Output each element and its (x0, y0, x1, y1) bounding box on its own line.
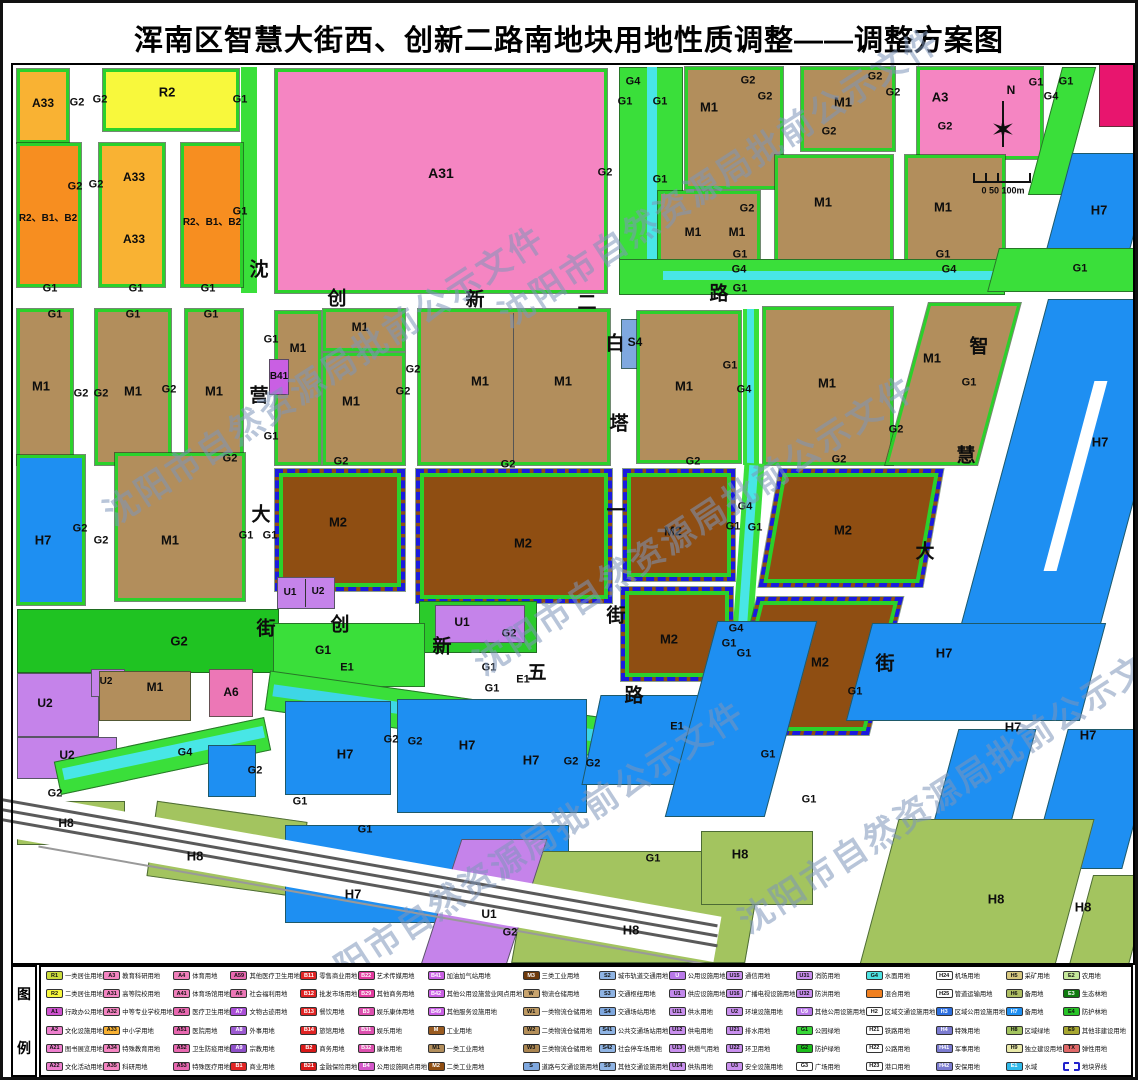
zone-label: G1 (263, 531, 278, 542)
zone-label: G1 (618, 97, 633, 108)
zone-label: G2 (408, 737, 423, 748)
legend-item: A32中等专业学校用地 (103, 1007, 172, 1016)
legend-item: U14供热用地 (669, 1062, 726, 1071)
legend-item: E3生态林地 (1063, 989, 1126, 998)
legend-column: E2农用地E3生态林地E4防护林地E9其他非建设用地TX弹性用地地块界线 (1063, 971, 1126, 1071)
zone-label: H8 (1075, 901, 1092, 914)
legend-item: H3区域公用设施用地 (936, 1007, 1005, 1016)
legend-item-label: 道路与交通设施用地 (542, 1062, 599, 1071)
legend-color-chip: B41 (428, 971, 445, 980)
legend-item: G2防护绿地 (796, 1044, 865, 1053)
legend-item: U16广播电视设施用地 (726, 989, 795, 998)
zone-label: G1 (733, 284, 748, 295)
legend-item: U9其他公用设施用地 (796, 1007, 865, 1016)
zone-label: 塔 (609, 415, 628, 434)
map-zone (1069, 875, 1138, 965)
legend-item: B42其他公用设施营业网点用地 (428, 989, 523, 998)
legend-item-label: 备用地 (1025, 989, 1044, 998)
legend-item: H5采矿用地 (1006, 971, 1063, 980)
legend-color-chip: H23 (866, 1062, 883, 1071)
legend-item: S42社会停车场用地 (599, 1044, 668, 1053)
legend-item: A6社会福利用地 (230, 989, 299, 998)
legend-item-label: 环境设施用地 (745, 1007, 783, 1016)
zone-label: G1 (1029, 78, 1044, 89)
legend-color-chip: H3 (936, 1007, 953, 1016)
zone-label: 二 (577, 294, 596, 313)
legend-item: A41体育场馆用地 (173, 989, 230, 998)
legend-color-chip: G4 (866, 971, 883, 980)
legend-item-label: 水面用地 (885, 971, 910, 980)
zone-label: H7 (337, 748, 354, 761)
legend-item-label: 其他非建设用地 (1082, 1026, 1126, 1035)
zone-label: G1 (126, 310, 141, 321)
zone-label: R2、B1、B2 (19, 214, 77, 224)
legend-item: M3三类工业用地 (523, 971, 599, 980)
legend-item: H22公路用地 (866, 1044, 935, 1053)
legend-item: S41公共交通场站用地 (599, 1026, 668, 1035)
legend-item: B14旅馆用地 (300, 1026, 357, 1035)
legend-item-label: 公用设施网点用地 (377, 1062, 427, 1071)
map-zone (103, 69, 239, 131)
zone-label: G1 (485, 684, 500, 695)
zone-label: G1 (358, 825, 373, 836)
zone-label: G1 (653, 97, 668, 108)
legend-item: E9其他非建设用地 (1063, 1026, 1126, 1035)
legend-column: M3三类工业用地W物流仓储用地W1一类物流仓储用地W2二类物流仓储用地W3三类物… (523, 971, 599, 1071)
legend-item: U2环境设施用地 (726, 1007, 795, 1016)
zone-label: G2 (334, 457, 349, 468)
zone-label: G2 (741, 76, 756, 87)
legend-item: B21金融保险用地 (300, 1062, 357, 1071)
zone-label: H7 (459, 739, 476, 752)
zone-label: 街 (875, 655, 894, 674)
legend-color-chip: B21 (300, 1062, 317, 1071)
zone-label: A33 (123, 171, 145, 183)
zone-label: G2 (501, 460, 516, 471)
legend-color-chip: A51 (173, 1026, 190, 1035)
zone-label: 街 (256, 620, 275, 639)
legend-color-chip: A3 (103, 971, 120, 980)
legend-item: A59其他医疗卫生用地 (230, 971, 299, 980)
zone-label: G1 (204, 310, 219, 321)
zone-label: H7 (1092, 436, 1109, 449)
zone-label: G1 (201, 284, 216, 295)
zone-label: H8 (623, 924, 640, 937)
legend-color-chip: G3 (796, 1062, 813, 1071)
legend-item-label: 二类居住用地 (65, 989, 103, 998)
legend-item: R2二类居住用地 (46, 989, 103, 998)
zone-label: G1 (936, 250, 951, 261)
zone-label: G2 (74, 389, 89, 400)
legend-column: H5采矿用地H6备用地H7备用地H8区域绿地H9独立建设用地E1水域 (1006, 971, 1063, 1071)
legend-item-label: 体育场馆用地 (192, 989, 230, 998)
map-zone (997, 173, 999, 183)
zone-label: M1 (161, 534, 179, 547)
zone-label: G2 (758, 92, 773, 103)
zone-label: M2 (811, 656, 829, 669)
legend-item-label: 三类物流仓储用地 (542, 1044, 592, 1053)
zone-label: M1 (685, 226, 702, 238)
legend-item: M1一类工业用地 (428, 1044, 523, 1053)
legend-item: H21铁路用地 (866, 1026, 935, 1035)
legend-color-chip: U2 (726, 1007, 743, 1016)
legend-item: A52卫生防疫用地 (173, 1044, 230, 1053)
legend-item-label: 商业用地 (249, 1062, 274, 1071)
legend-color-chip: A32 (103, 1007, 120, 1016)
legend-color-chip: U9 (796, 1007, 813, 1016)
zone-label: 白 (605, 335, 624, 354)
legend-color-chip: M2 (428, 1062, 445, 1071)
zone-label: M1 (32, 380, 50, 393)
legend-color-chip: S2 (599, 971, 616, 980)
zone-label: H8 (988, 893, 1005, 906)
legend-item-label: 宗教用地 (249, 1044, 274, 1053)
legend-item: H9独立建设用地 (1006, 1044, 1063, 1053)
zone-label: G1 (233, 207, 248, 218)
legend-item-label: 一类工业用地 (447, 1044, 485, 1053)
legend-color-chip: A4 (173, 971, 190, 980)
legend-column: A59其他医疗卫生用地A6社会福利用地A7文物古迹用地A8外事用地A9宗教用地B… (230, 971, 299, 1071)
legend-color-chip: H41 (936, 1044, 953, 1053)
legend-title-char: 图 (17, 984, 31, 1004)
zone-label: M1 (205, 385, 223, 398)
legend-item-label: 防洪用地 (815, 989, 840, 998)
zone-label: G2 (68, 182, 83, 193)
legend-color-chip: B42 (428, 989, 445, 998)
legend-item: H6备用地 (1006, 989, 1063, 998)
zone-label: M1 (124, 385, 142, 398)
legend-item-label: 其他公用设施营业网点用地 (447, 989, 523, 998)
zone-label: E1 (516, 675, 529, 686)
legend-color-chip: A59 (230, 971, 247, 980)
legend-item: A3教育科研用地 (103, 971, 172, 980)
legend-color-chip: E9 (1063, 1026, 1080, 1035)
legend-color-chip: H21 (866, 1026, 883, 1035)
legend-color-chip: B4 (358, 1062, 375, 1071)
zone-label: M1 (923, 352, 941, 365)
map-canvas: A33G2G2R2G1A31G2G4G1G1G1M1G2G2M1G2G2G2A3… (3, 3, 1138, 1080)
zone-label: 五 (527, 664, 546, 683)
legend-item: E1水域 (1006, 1062, 1063, 1071)
legend-color-chip: H9 (1006, 1044, 1023, 1053)
zone-label: G1 (748, 523, 763, 534)
legend-color-chip: B13 (300, 1007, 317, 1016)
zone-label: A3 (932, 91, 949, 104)
legend-item: H24机场用地 (936, 971, 1005, 980)
plan-map-page: A33G2G2R2G1A31G2G4G1G1G1M1G2G2M1G2G2G2A3… (0, 0, 1138, 1080)
legend-item-label: 军事用地 (955, 1044, 980, 1053)
legend-item: B4公用设施网点用地 (358, 1062, 427, 1071)
legend-color-chip: A31 (103, 989, 120, 998)
legend-color-chip: B49 (428, 1007, 445, 1016)
legend-color-chip: S9 (599, 1062, 616, 1071)
legend-color-chip: S4 (599, 1007, 616, 1016)
legend-column: B11零售商业用地B12批发市场用地B13餐饮用地B14旅馆用地B2商务用地B2… (300, 971, 357, 1071)
zone-label: A33 (123, 233, 145, 245)
legend-item: U13供燃气用地 (669, 1044, 726, 1053)
legend-column: U31消防用地U32防洪用地U9其他公用设施用地G1公园绿地G2防护绿地G3广场… (796, 971, 865, 1071)
legend-item: U31消防用地 (796, 971, 865, 980)
legend-item-label: 交通枢纽用地 (618, 989, 656, 998)
map-zone (917, 67, 1043, 159)
legend-color-chip: S (523, 1062, 540, 1071)
legend-item-label: 金融保险用地 (319, 1062, 357, 1071)
map-zone (905, 155, 1005, 269)
zone-label: G4 (942, 265, 957, 276)
legend-item-label: 中等专业学校用地 (122, 1007, 172, 1016)
map-zone (99, 671, 191, 721)
legend-item: H2区域交通设施用地 (866, 1007, 935, 1016)
legend-item: S2城市轨道交通用地 (599, 971, 668, 980)
legend-column: H24机场用地H25管道运输用地H3区域公用设施用地H4特殊用地H41军事用地H… (936, 971, 1005, 1071)
zone-label: S4 (628, 336, 643, 348)
legend-item-label: 批发市场用地 (319, 989, 357, 998)
zone-label: M1 (814, 196, 832, 209)
zone-label: G2 (503, 928, 518, 939)
zone-label: A6 (223, 686, 238, 698)
legend-item: A33中小学用地 (103, 1026, 172, 1035)
zone-label: M1 (290, 342, 307, 354)
zone-label: G1 (848, 687, 863, 698)
legend-color-chip: A7 (230, 1007, 247, 1016)
legend-color-chip: W1 (523, 1007, 540, 1016)
legend-color-chip: A52 (173, 1044, 190, 1053)
zone-label: M2 (514, 537, 532, 550)
legend-column: B22艺术传媒用地B29其他商务用地B3娱乐康体用地B31娱乐用地B32康体用地… (358, 971, 427, 1071)
zone-label: G4 (732, 265, 747, 276)
legend-color-chip: S42 (599, 1044, 616, 1053)
zone-label: G2 (586, 759, 601, 770)
zone-label: 新 (432, 638, 451, 657)
zone-label: G1 (802, 795, 817, 806)
legend-item-label: 水域 (1025, 1062, 1038, 1071)
zone-label: 创 (327, 290, 346, 309)
map-zone (1099, 63, 1138, 127)
legend-item-label: 中小学用地 (122, 1026, 153, 1035)
legend-item-label: 其他交通设施用地 (618, 1062, 668, 1071)
zone-label: M1 (342, 395, 360, 408)
legend-item-label: 体育用地 (192, 971, 217, 980)
zone-label: M2 (329, 516, 347, 529)
zone-label: G2 (406, 365, 421, 376)
zone-label: 创 (330, 616, 349, 635)
legend-color-chip: B29 (358, 989, 375, 998)
legend-color-chip: B32 (358, 1044, 375, 1053)
legend-item: W物流仓储用地 (523, 989, 599, 998)
legend-column: A4体育用地A41体育场馆用地A5医疗卫生用地A51医院用地A52卫生防疫用地A… (173, 971, 230, 1071)
legend-item: B22艺术传媒用地 (358, 971, 427, 980)
legend-item: W2二类物流仓储用地 (523, 1026, 599, 1035)
legend-item-label: 供水用地 (688, 1007, 713, 1016)
legend-color-chip: M (428, 1026, 445, 1035)
map-zone (17, 609, 279, 673)
legend-item-label: 医疗卫生用地 (192, 1007, 230, 1016)
legend-color-chip (866, 989, 883, 998)
legend-color-chip: B14 (300, 1026, 317, 1035)
zone-label: A31 (428, 166, 454, 180)
legend-item: A21图书展览用地 (46, 1044, 103, 1053)
legend-color-chip: U (669, 971, 686, 980)
legend-column: A3教育科研用地A31高等院校用地A32中等专业学校用地A33中小学用地A34特… (103, 971, 172, 1071)
legend-item: U3安全设施用地 (726, 1062, 795, 1071)
zone-label: H7 (1080, 729, 1097, 742)
legend-color-chip: U21 (726, 1026, 743, 1035)
legend-item: A9宗教用地 (230, 1044, 299, 1053)
legend-item-label: 弹性用地 (1082, 1044, 1107, 1053)
legend-item-label: 一类物流仓储用地 (542, 1007, 592, 1016)
legend-column: U公用设施用地U1供应设施用地U11供水用地U12供电用地U13供燃气用地U14… (669, 971, 726, 1071)
map-zone (99, 143, 165, 287)
map-zone (275, 469, 405, 591)
legend-item-label: 防护绿地 (815, 1044, 840, 1053)
legend-color-chip: U32 (796, 989, 813, 998)
legend-item: H41军事用地 (936, 1044, 1005, 1053)
legend-color-chip: E2 (1063, 971, 1080, 980)
zone-label: G2 (70, 98, 85, 109)
legend-item: B12批发市场用地 (300, 989, 357, 998)
compass-north-label: N (1007, 84, 1016, 96)
compass-icon: ✶ (990, 116, 1015, 146)
zone-label: H8 (58, 817, 73, 829)
zone-label: G2 (598, 168, 613, 179)
legend-item-label: 二类工业用地 (447, 1062, 485, 1071)
zone-label: M1 (934, 201, 952, 214)
legend-color-chip: A5 (173, 1007, 190, 1016)
legend-item: G4水面用地 (866, 971, 935, 980)
legend-item: H42安保用地 (936, 1062, 1005, 1071)
zone-label: G2 (170, 635, 187, 648)
legend-item: G3广场用地 (796, 1062, 865, 1071)
zone-label: 路 (624, 687, 643, 706)
legend-item-label: 其他医疗卫生用地 (249, 971, 299, 980)
legend-color-chip: S3 (599, 989, 616, 998)
legend-item: W3三类物流仓储用地 (523, 1044, 599, 1053)
zone-label: G1 (722, 639, 737, 650)
zone-label: G1 (315, 644, 331, 656)
legend-color-chip: B3 (358, 1007, 375, 1016)
legend-item-label: 公园绿地 (815, 1026, 840, 1035)
legend-item-label: 娱乐康体用地 (377, 1007, 415, 1016)
zone-label: U2 (59, 749, 74, 761)
zone-label: U1 (454, 616, 469, 628)
legend-column: B41加油加气站用地B42其他公用设施营业网点用地B49其他服务设施用地M工业用… (428, 971, 523, 1071)
map-zone (775, 155, 893, 269)
legend-item-label: 文化活动用地 (65, 1062, 103, 1071)
legend-item-label: 工业用地 (447, 1026, 472, 1035)
zone-label: G4 (178, 748, 193, 759)
legend-item: TX弹性用地 (1063, 1044, 1126, 1053)
zone-label: R2 (159, 86, 176, 99)
legend-item-label: 卫生防疫用地 (192, 1044, 230, 1053)
legend-item-label: 其他商务用地 (377, 989, 415, 998)
legend-item: U公用设施用地 (669, 971, 726, 980)
legend-item: B1商业用地 (230, 1062, 299, 1071)
legend-color-chip (1063, 1062, 1080, 1071)
legend-item-label: 特殊用地 (955, 1026, 980, 1035)
legend-item-label: 铁路用地 (885, 1026, 910, 1035)
legend-item-label: 医院用地 (192, 1026, 217, 1035)
legend: R1一类居住用地R2二类居住用地A1行政办公用地A2文化设施用地A21图书展览用… (39, 965, 1133, 1077)
zone-label: H7 (35, 534, 52, 547)
legend-item: A5医疗卫生用地 (173, 1007, 230, 1016)
legend-item-label: 管道运输用地 (955, 989, 993, 998)
legend-color-chip: U31 (796, 971, 813, 980)
legend-color-chip: U15 (726, 971, 743, 980)
legend-item-label: 其他服务设施用地 (447, 1007, 497, 1016)
zone-label: G2 (384, 735, 399, 746)
legend-item: M工业用地 (428, 1026, 523, 1035)
legend-item-label: 生态林地 (1082, 989, 1107, 998)
legend-color-chip: A6 (230, 989, 247, 998)
zone-label: G1 (293, 797, 308, 808)
legend-item-label: 艺术传媒用地 (377, 971, 415, 980)
zone-label: G1 (1073, 264, 1088, 275)
zone-label: G4 (737, 385, 752, 396)
legend-item: B49其他服务设施用地 (428, 1007, 523, 1016)
zone-label: M2 (834, 524, 852, 537)
legend-item: A8外事用地 (230, 1026, 299, 1035)
zone-label: G2 (94, 389, 109, 400)
legend-item: 混合用地 (866, 989, 935, 998)
legend-color-chip: U14 (669, 1062, 686, 1071)
legend-color-chip: H8 (1006, 1026, 1023, 1035)
legend-color-chip: A9 (230, 1044, 247, 1053)
zone-label: 大 (251, 506, 270, 525)
zone-label: G2 (740, 204, 755, 215)
legend-color-chip: A35 (103, 1062, 120, 1071)
legend-item: W1一类物流仓储用地 (523, 1007, 599, 1016)
legend-item: B2商务用地 (300, 1044, 357, 1053)
legend-item-label: 加油加气站用地 (447, 971, 491, 980)
zone-label: U2 (312, 587, 325, 597)
zone-label: G1 (1059, 77, 1074, 88)
legend-item-label: 特殊教育用地 (122, 1044, 160, 1053)
zone-label: U2 (100, 677, 113, 687)
legend-color-chip: E1 (1006, 1062, 1023, 1071)
legend-item-label: 公路用地 (885, 1044, 910, 1053)
zone-label: G1 (129, 284, 144, 295)
legend-item: A4体育用地 (173, 971, 230, 980)
legend-item-label: 科研用地 (122, 1062, 147, 1071)
legend-color-chip: A2 (46, 1026, 63, 1035)
legend-color-chip: U11 (669, 1007, 686, 1016)
legend-title-char: 例 (17, 1038, 31, 1058)
zone-label: 沈 (249, 261, 268, 280)
legend-color-chip: R2 (46, 989, 63, 998)
legend-color-chip: B11 (300, 971, 317, 980)
legend-item-label: 其他公用设施用地 (815, 1007, 865, 1016)
legend-item: A35科研用地 (103, 1062, 172, 1071)
legend-color-chip: H6 (1006, 989, 1023, 998)
legend-color-chip: A8 (230, 1026, 247, 1035)
legend-item-label: 商务用地 (319, 1044, 344, 1053)
legend-color-chip: H7 (1006, 1007, 1023, 1016)
map-zone (1029, 173, 1031, 183)
zone-label: M1 (675, 380, 693, 393)
legend-color-chip: A53 (173, 1062, 190, 1071)
legend-color-chip: W3 (523, 1044, 540, 1053)
zone-label: 大 (915, 543, 934, 562)
legend-item: A22文化活动用地 (46, 1062, 103, 1071)
legend-item: G1公园绿地 (796, 1026, 865, 1035)
legend-column: R1一类居住用地R2二类居住用地A1行政办公用地A2文化设施用地A21图书展览用… (46, 971, 103, 1071)
legend-color-chip: E4 (1063, 1007, 1080, 1016)
legend-item-label: 供电用地 (688, 1026, 713, 1035)
legend-item: R1一类居住用地 (46, 971, 103, 980)
legend-color-chip: B22 (358, 971, 375, 980)
legend-item-label: 港口用地 (885, 1062, 910, 1071)
legend-item: S4交通场站用地 (599, 1007, 668, 1016)
